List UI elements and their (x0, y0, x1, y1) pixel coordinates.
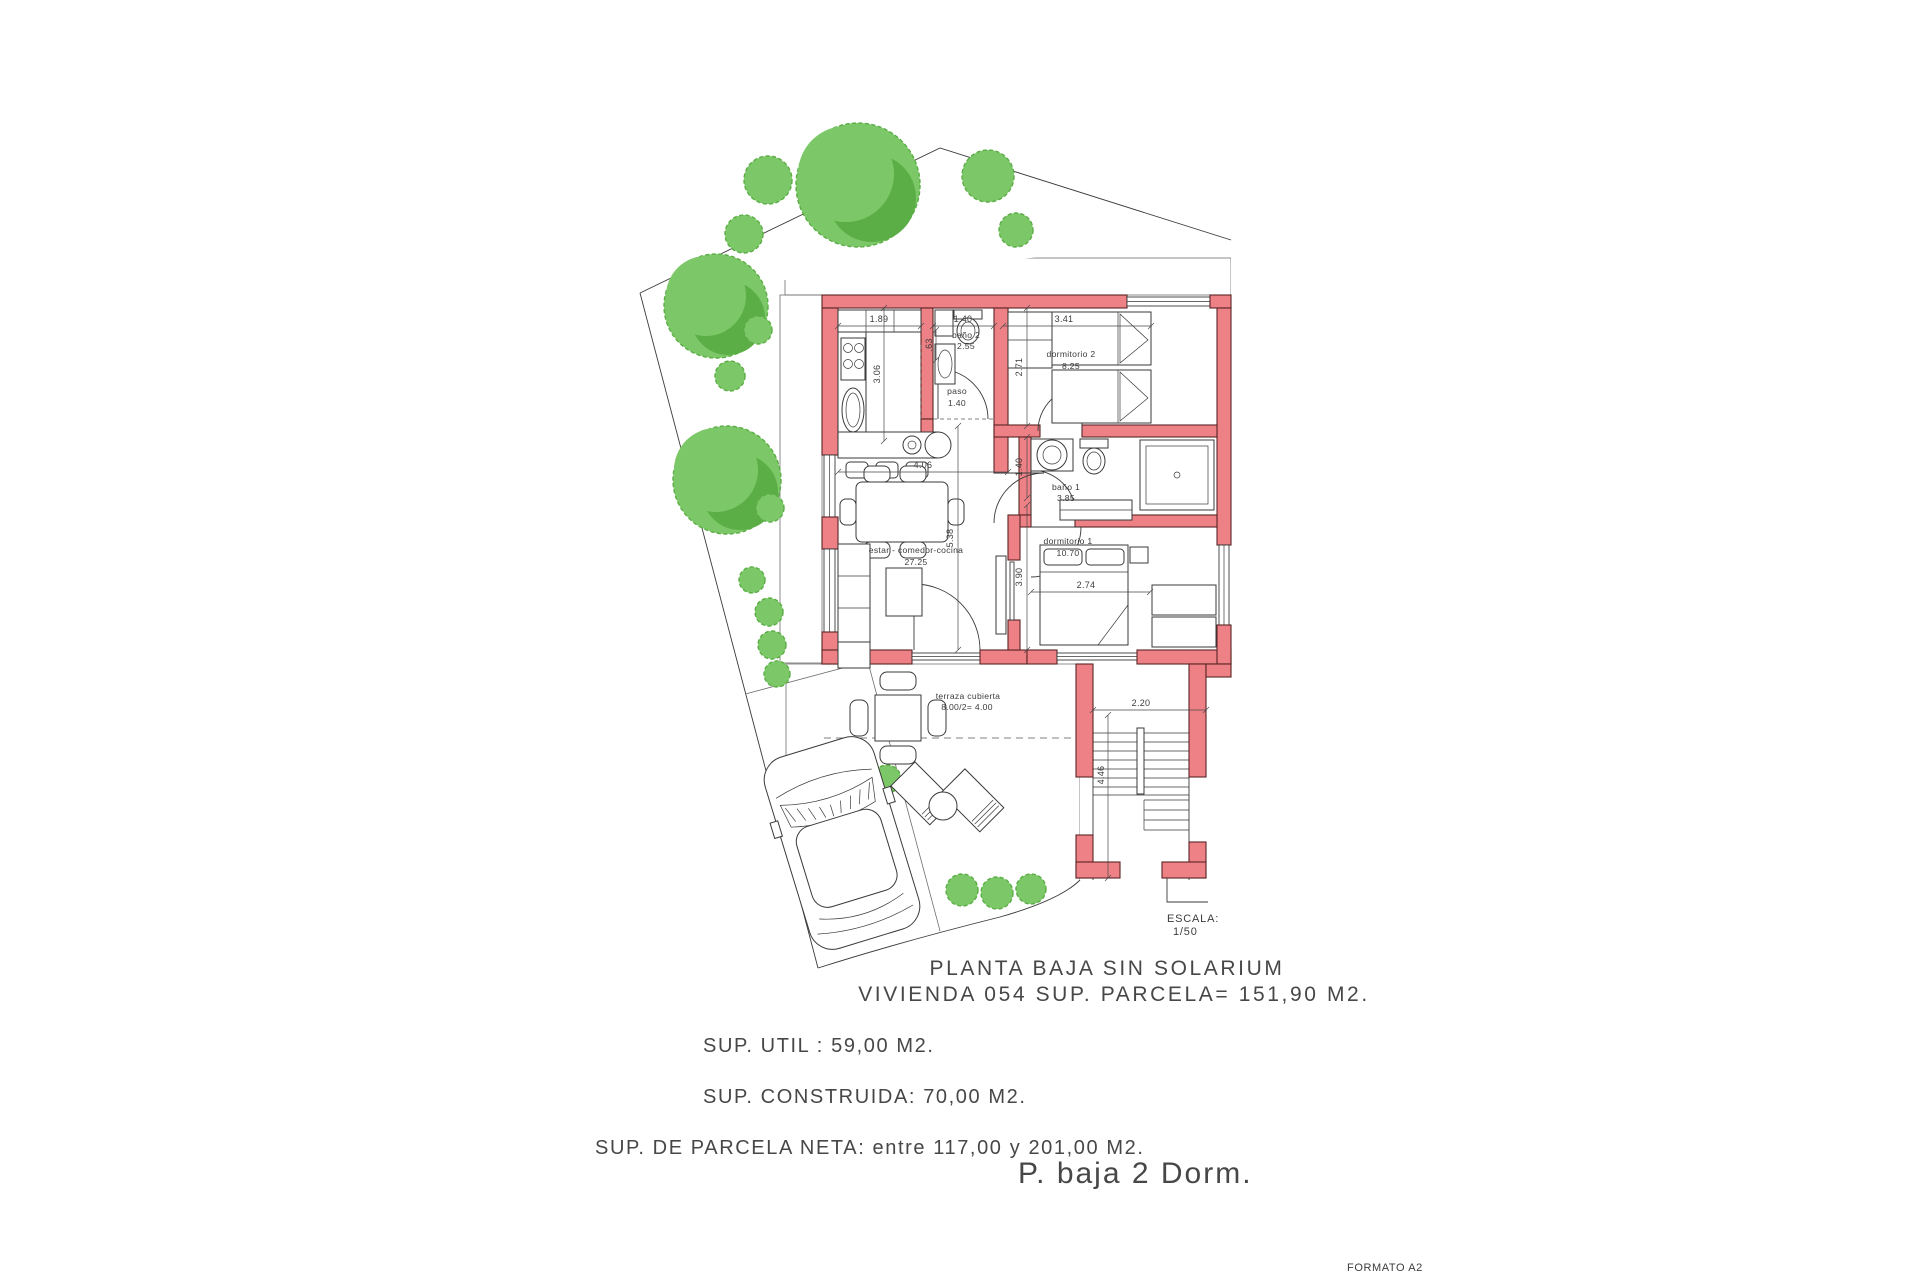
tree-top-big (796, 123, 920, 247)
room-bano1-label: baño 1 (1052, 482, 1080, 492)
footer-plan-name: P. baja 2 Dorm. (1018, 1157, 1253, 1190)
sup-construida: SUP. CONSTRUIDA: 70,00 M2. (703, 1086, 1027, 1108)
tv-unit (996, 556, 1006, 634)
plan-sheet: 1.89 1.40 3.41 4.06 2.74 2.20 3.06 .63 2… (0, 0, 1920, 1280)
room-estar-label: estar - comedor-cocina (869, 545, 963, 555)
room-dorm2-label: dormitorio 2 (1047, 349, 1096, 359)
terrace-table (875, 695, 921, 741)
dim-stairs-w: 2.20 (1132, 698, 1151, 708)
bush (744, 316, 772, 344)
sofa (838, 544, 870, 642)
chair (864, 466, 890, 482)
paving-top-band (785, 258, 1231, 295)
sink (1037, 440, 1067, 470)
dim-dorm1-w: 2.74 (1077, 580, 1096, 590)
dining-table (856, 482, 948, 542)
sup-util: SUP. UTIL : 59,00 M2. (703, 1035, 934, 1057)
paving-left-strip (780, 295, 822, 663)
room-paso-label: paso (947, 386, 967, 396)
chair (880, 672, 916, 690)
dim-estar-w: 4.06 (914, 460, 933, 470)
stair-rail (1137, 728, 1144, 794)
escala-value: 1/50 (1173, 926, 1198, 938)
tree (999, 213, 1033, 247)
coffee-table (886, 568, 922, 616)
dim-stairs-h: 4.46 (1096, 766, 1106, 785)
floor-plan-drawing: 1.89 1.40 3.41 4.06 2.74 2.20 3.06 .63 2… (0, 0, 1920, 1280)
room-dorm1-label: dormitorio 1 (1044, 536, 1093, 546)
dim-bano2-w: 1.40 (954, 314, 973, 324)
kitchen-fittings (838, 310, 951, 478)
room-bano2-area: 2.55 (957, 341, 975, 351)
shower (1140, 440, 1214, 510)
room-dorm1-area: 10.70 (1056, 548, 1079, 558)
bush (715, 361, 745, 391)
room-estar-area: 27.25 (904, 557, 927, 567)
bush (946, 874, 978, 906)
side-table (929, 792, 957, 820)
chair (948, 499, 964, 525)
nightstand (1130, 547, 1148, 563)
plan-subtitle: VIVIENDA 054 SUP. PARCELA= 151,90 M2. (858, 983, 1370, 1006)
pillow (1086, 549, 1124, 565)
bush (739, 567, 765, 593)
room-bano2-label: baño 2 (952, 330, 980, 340)
bush (756, 494, 784, 522)
dim-kitchen-w: 1.89 (870, 314, 889, 324)
tree (962, 150, 1014, 202)
dim-dorm2-h: 2.71 (1014, 358, 1024, 377)
room-dorm2-area: 8.25 (1062, 361, 1080, 371)
bush (764, 661, 790, 687)
room-terraza-area: 8.00/2= 4.00 (941, 702, 993, 712)
dim-dorm2-w: 3.41 (1055, 314, 1074, 324)
formato-label: FORMATO A2 (1347, 1262, 1423, 1274)
escala-label: ESCALA: (1167, 913, 1219, 925)
wardrobe (1152, 617, 1216, 647)
dim-bano2-d: .63 (924, 338, 934, 351)
room-paso-area: 1.40 (948, 398, 966, 408)
title-block: PLANTA BAJA SIN SOLARIUM VIVIENDA 054 SU… (595, 957, 1423, 1274)
living-furniture (838, 466, 1006, 668)
room-bano1-area: 3.85 (1057, 493, 1075, 503)
sup-parcela-neta: SUP. DE PARCELA NETA: entre 117,00 y 201… (595, 1137, 1145, 1159)
bush (758, 631, 786, 659)
dim-bano1-h: 1.40 (1014, 458, 1024, 477)
room-terraza-label: terraza cubierta (936, 691, 1001, 701)
bush (981, 877, 1013, 909)
scale-note: ESCALA: 1/50 (1167, 913, 1219, 938)
bush (755, 598, 783, 626)
dim-kitchen-h: 3.06 (872, 365, 882, 384)
wardrobe (1152, 585, 1216, 615)
kitchen-sink (842, 388, 864, 432)
chair (850, 700, 868, 736)
chair (840, 499, 856, 525)
sofa-chaise (838, 642, 870, 668)
dim-dorm1-h: 3.90 (1014, 568, 1024, 587)
chair (880, 746, 916, 764)
plan-title: PLANTA BAJA SIN SOLARIUM (930, 957, 1285, 980)
tree (744, 156, 792, 204)
bed (1052, 370, 1151, 423)
toilet (1080, 439, 1108, 448)
tree (725, 215, 763, 253)
bush (1016, 874, 1046, 904)
